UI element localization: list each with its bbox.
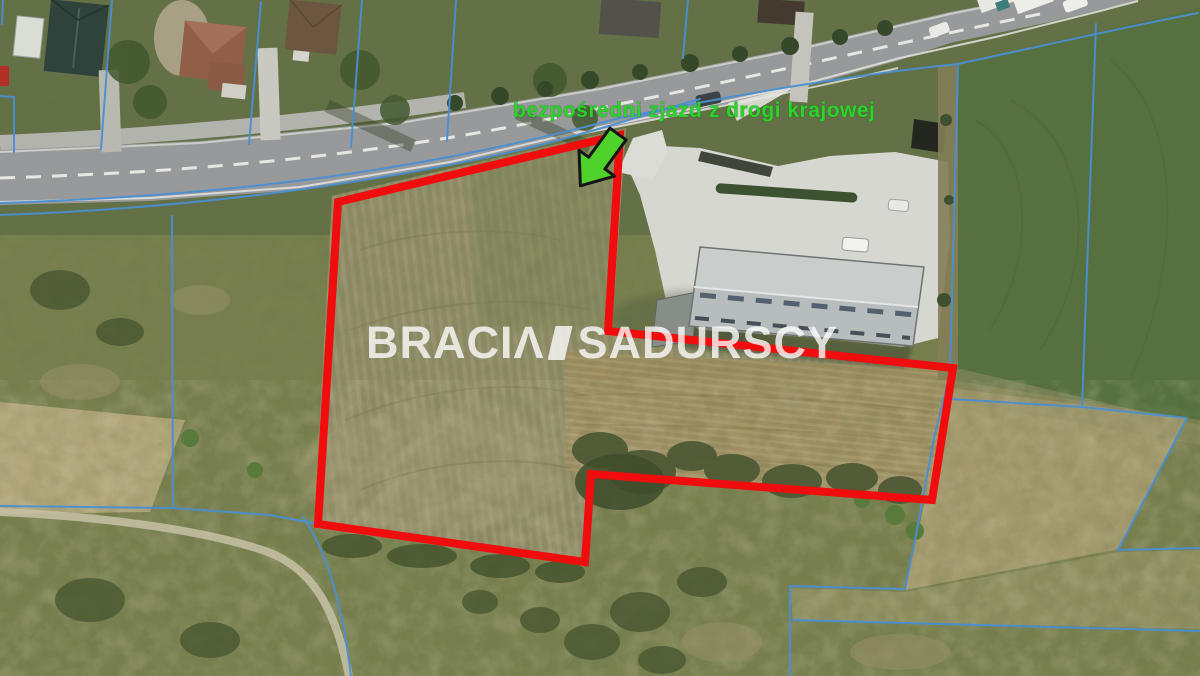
aerial-map: bezpośredni zjazd z drogi krajowej BRACI… bbox=[0, 0, 1200, 676]
watermark-logo-icon bbox=[547, 326, 572, 360]
watermark-part2: SADURSCY bbox=[577, 317, 838, 369]
boundary-scrub-strip bbox=[938, 65, 958, 380]
driveway-2 bbox=[257, 48, 280, 141]
watermark-part1: BRACIΛ bbox=[366, 317, 545, 369]
house-white bbox=[13, 16, 44, 59]
car-red bbox=[0, 66, 9, 86]
house-dark-roof bbox=[44, 0, 109, 77]
van-white bbox=[842, 237, 869, 252]
house-gray-roof bbox=[599, 0, 661, 38]
car-white-parked bbox=[888, 199, 909, 212]
watermark: BRACIΛ SADURSCY bbox=[366, 317, 838, 369]
annotation-label: bezpośredni zjazd z drogi krajowej bbox=[513, 99, 875, 123]
